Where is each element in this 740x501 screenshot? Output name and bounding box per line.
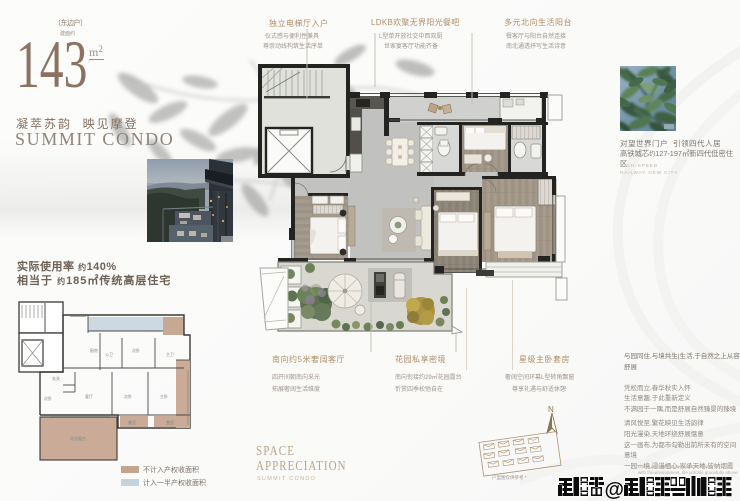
svg-text:N: N: [548, 405, 554, 414]
svg-text:主卫: 主卫: [166, 351, 174, 357]
svg-text:主卧: 主卧: [160, 393, 168, 399]
svg-text:客厅: 客厅: [85, 393, 93, 399]
svg-text:户型图仅供参考 *: 户型图仅供参考 *: [492, 474, 527, 481]
svg-text:厨房: 厨房: [90, 347, 98, 353]
svg-text:@: @: [605, 479, 625, 501]
svg-text:次卧: 次卧: [124, 393, 132, 399]
svg-text:叠室: 叠室: [166, 419, 174, 425]
svg-text:花园露台: 花园露台: [70, 435, 86, 441]
svg-text:公卫: 公卫: [105, 352, 113, 357]
svg-text:次卧: 次卧: [132, 347, 140, 353]
svg-text:玄关: 玄关: [52, 375, 60, 381]
svg-text:叠室: 叠室: [128, 419, 136, 425]
svg-text:次卧: 次卧: [44, 395, 52, 401]
